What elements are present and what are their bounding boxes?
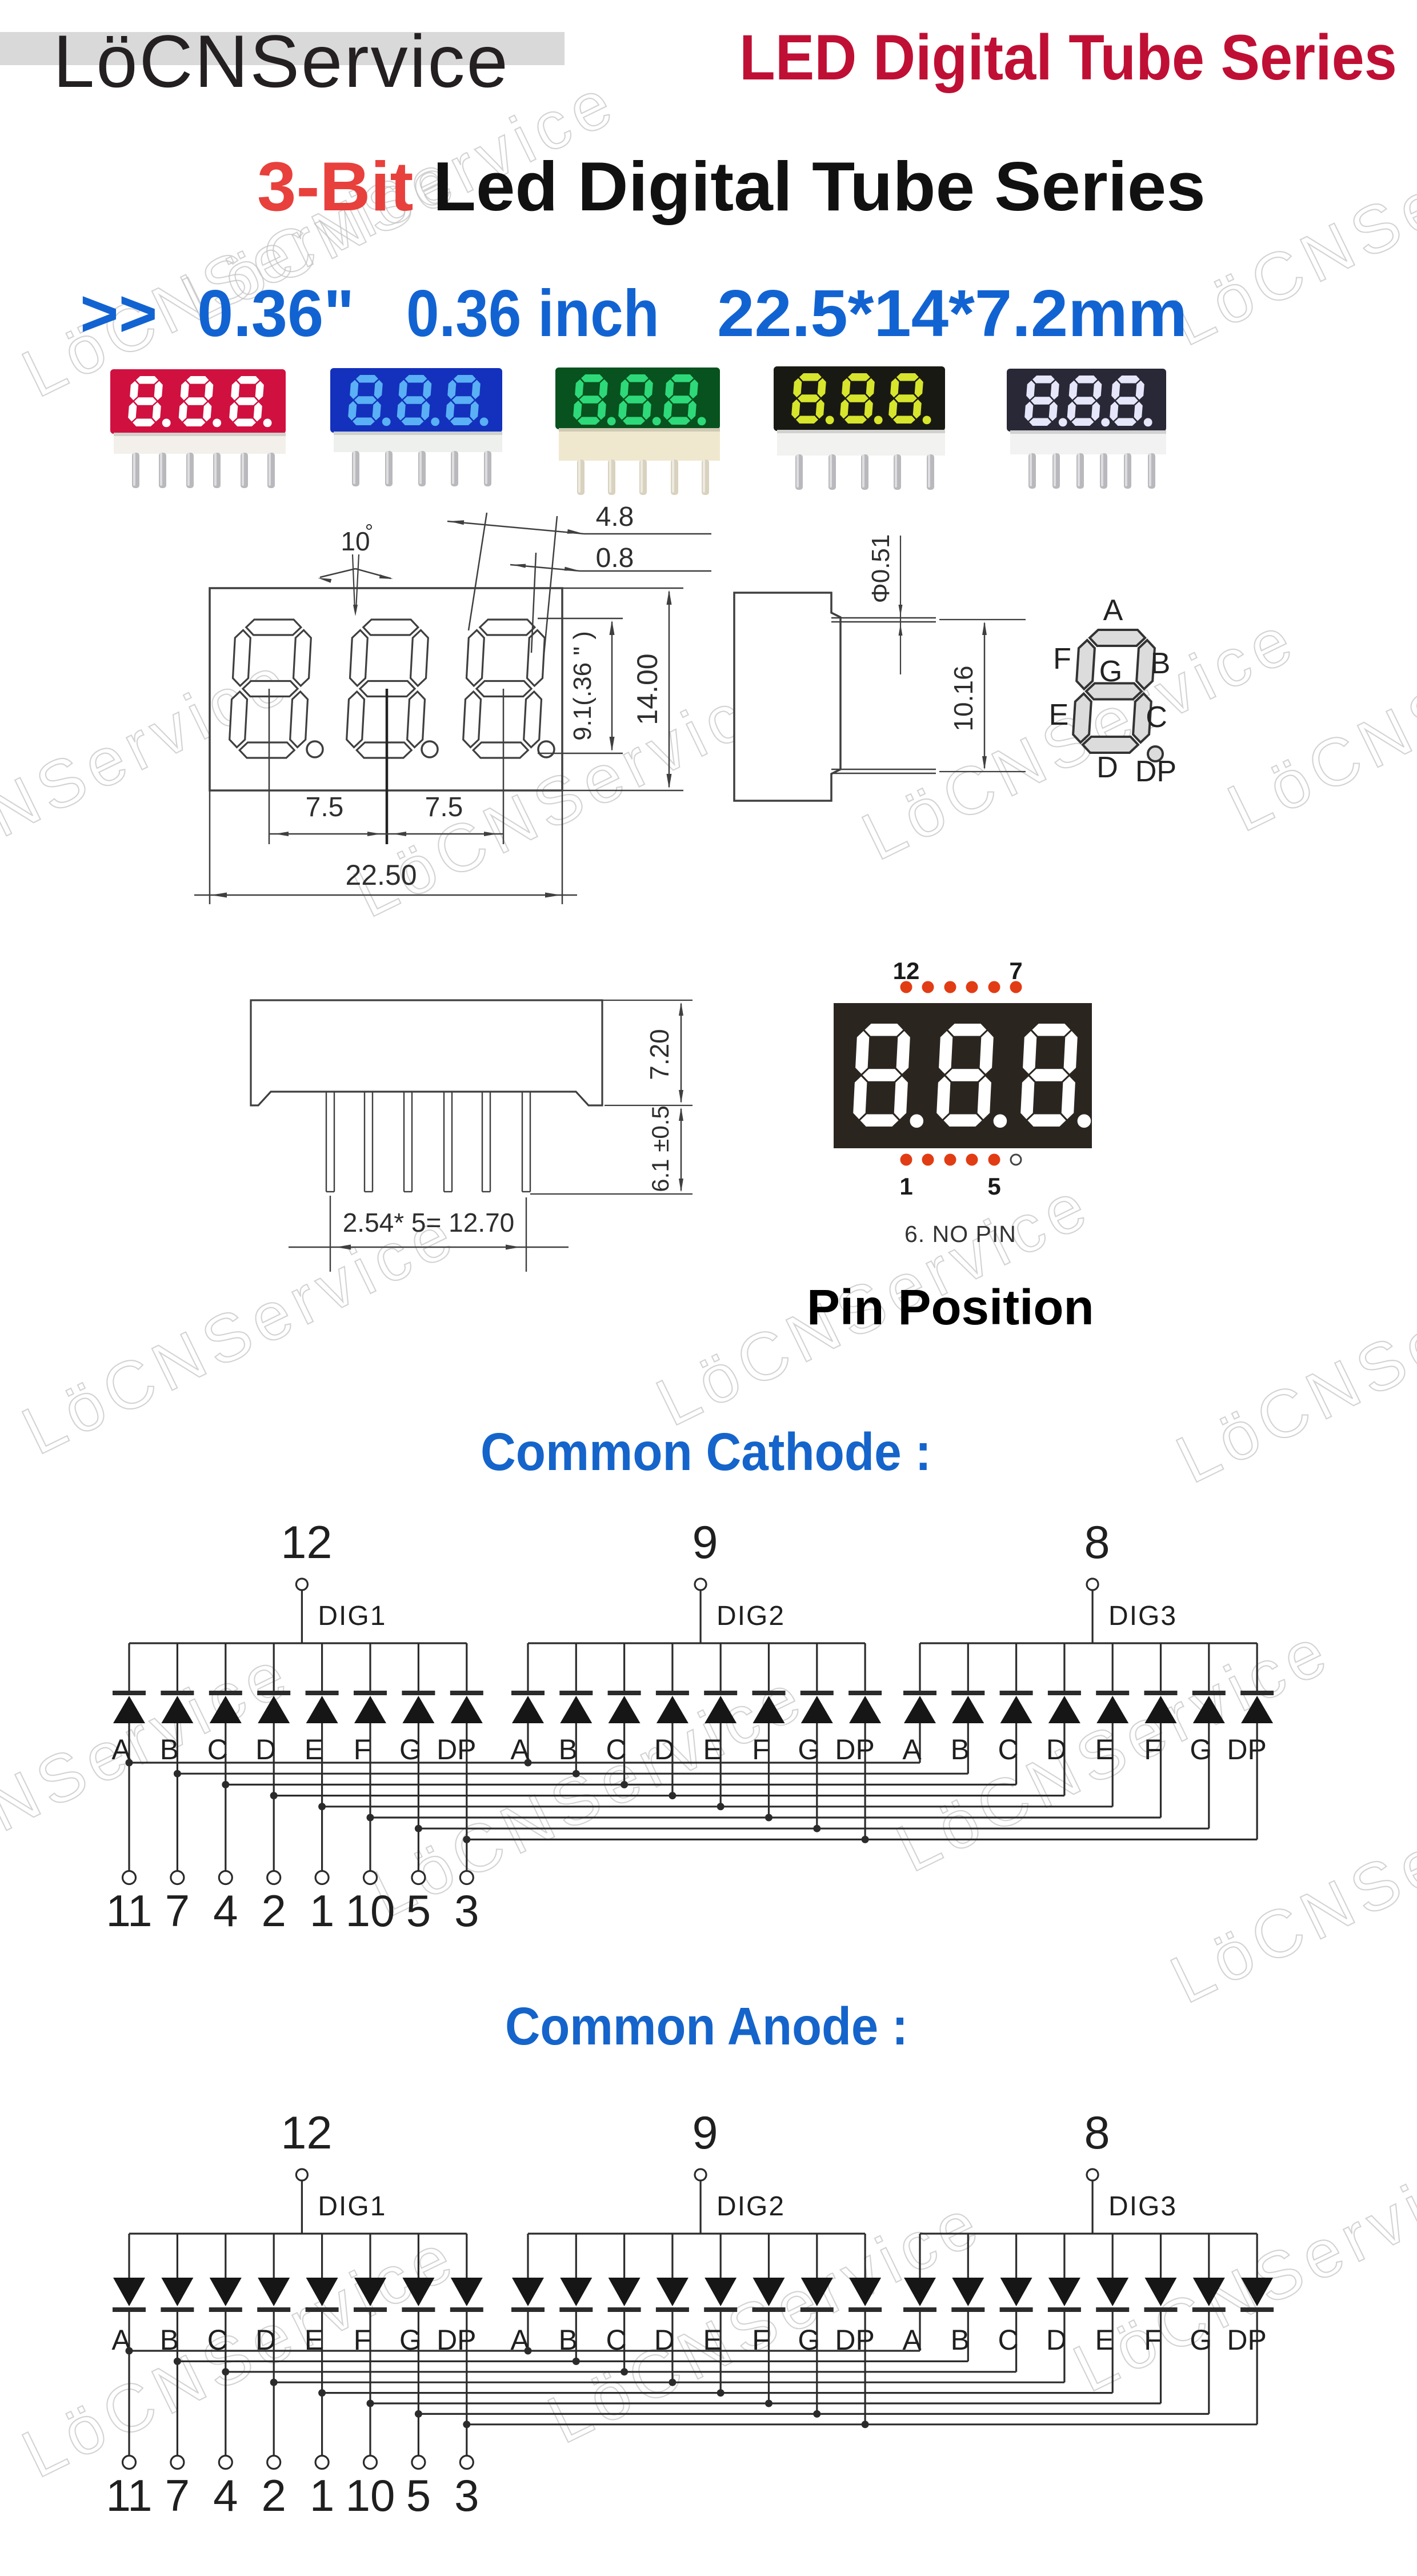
svg-text:D: D — [255, 1734, 276, 1766]
svg-text:F: F — [752, 1734, 770, 1766]
svg-text:C: C — [998, 2324, 1019, 2356]
svg-text:10: 10 — [346, 2470, 395, 2521]
svg-text:D: D — [654, 1734, 675, 1766]
svg-text:DIG1: DIG1 — [318, 1601, 386, 1631]
svg-text:11: 11 — [106, 1886, 153, 1936]
svg-text:DP: DP — [835, 1734, 874, 1766]
svg-text:B: B — [951, 1734, 970, 1766]
svg-text:8: 8 — [1084, 1517, 1110, 1568]
svg-text:DP: DP — [1227, 1734, 1266, 1766]
svg-text:B: B — [559, 1734, 578, 1766]
svg-text:8: 8 — [1084, 2107, 1110, 2159]
svg-text:G: G — [1190, 2324, 1212, 2356]
svg-text:C: C — [207, 1734, 228, 1766]
svg-text:DIG2: DIG2 — [716, 1601, 785, 1631]
svg-text:C: C — [998, 1734, 1019, 1766]
svg-text:E: E — [1095, 2324, 1114, 2356]
svg-text:11: 11 — [106, 2470, 153, 2521]
svg-text:4: 4 — [213, 1886, 238, 1936]
svg-text:B: B — [160, 1734, 179, 1766]
svg-text:F: F — [1144, 2324, 1162, 2356]
svg-text:F: F — [1144, 1734, 1162, 1766]
svg-text:12: 12 — [281, 1517, 332, 1568]
svg-text:G: G — [399, 1734, 422, 1766]
svg-text:C: C — [606, 1734, 627, 1766]
svg-text:G: G — [1190, 1734, 1212, 1766]
svg-text:12: 12 — [281, 2107, 332, 2159]
svg-text:A: A — [902, 1734, 922, 1766]
svg-text:2: 2 — [262, 1886, 286, 1936]
svg-text:1: 1 — [310, 2470, 334, 2521]
svg-text:1: 1 — [310, 1886, 334, 1936]
svg-text:5: 5 — [406, 2470, 431, 2521]
svg-text:DP: DP — [437, 1734, 476, 1766]
svg-text:4: 4 — [213, 2470, 238, 2521]
svg-text:2: 2 — [262, 2470, 286, 2521]
svg-text:E: E — [1095, 1734, 1114, 1766]
svg-text:DIG2: DIG2 — [716, 2191, 785, 2222]
svg-text:7: 7 — [165, 1886, 190, 1936]
svg-text:9: 9 — [693, 2107, 718, 2159]
svg-text:E: E — [305, 1734, 323, 1766]
svg-text:7: 7 — [165, 2470, 190, 2521]
svg-text:3: 3 — [454, 1886, 479, 1936]
svg-text:D: D — [1046, 1734, 1067, 1766]
svg-text:F: F — [354, 1734, 371, 1766]
svg-text:B: B — [951, 2324, 970, 2356]
svg-text:E: E — [703, 1734, 722, 1766]
svg-text:3: 3 — [454, 2470, 479, 2521]
svg-text:10: 10 — [346, 1886, 395, 1936]
svg-text:DIG1: DIG1 — [318, 2191, 386, 2222]
svg-text:5: 5 — [406, 1886, 431, 1936]
svg-text:9: 9 — [693, 1517, 718, 1568]
svg-text:G: G — [798, 1734, 820, 1766]
svg-text:DP: DP — [1227, 2324, 1266, 2356]
svg-text:DIG3: DIG3 — [1108, 2191, 1177, 2222]
svg-text:DIG3: DIG3 — [1108, 1601, 1177, 1631]
svg-text:D: D — [1046, 2324, 1067, 2356]
